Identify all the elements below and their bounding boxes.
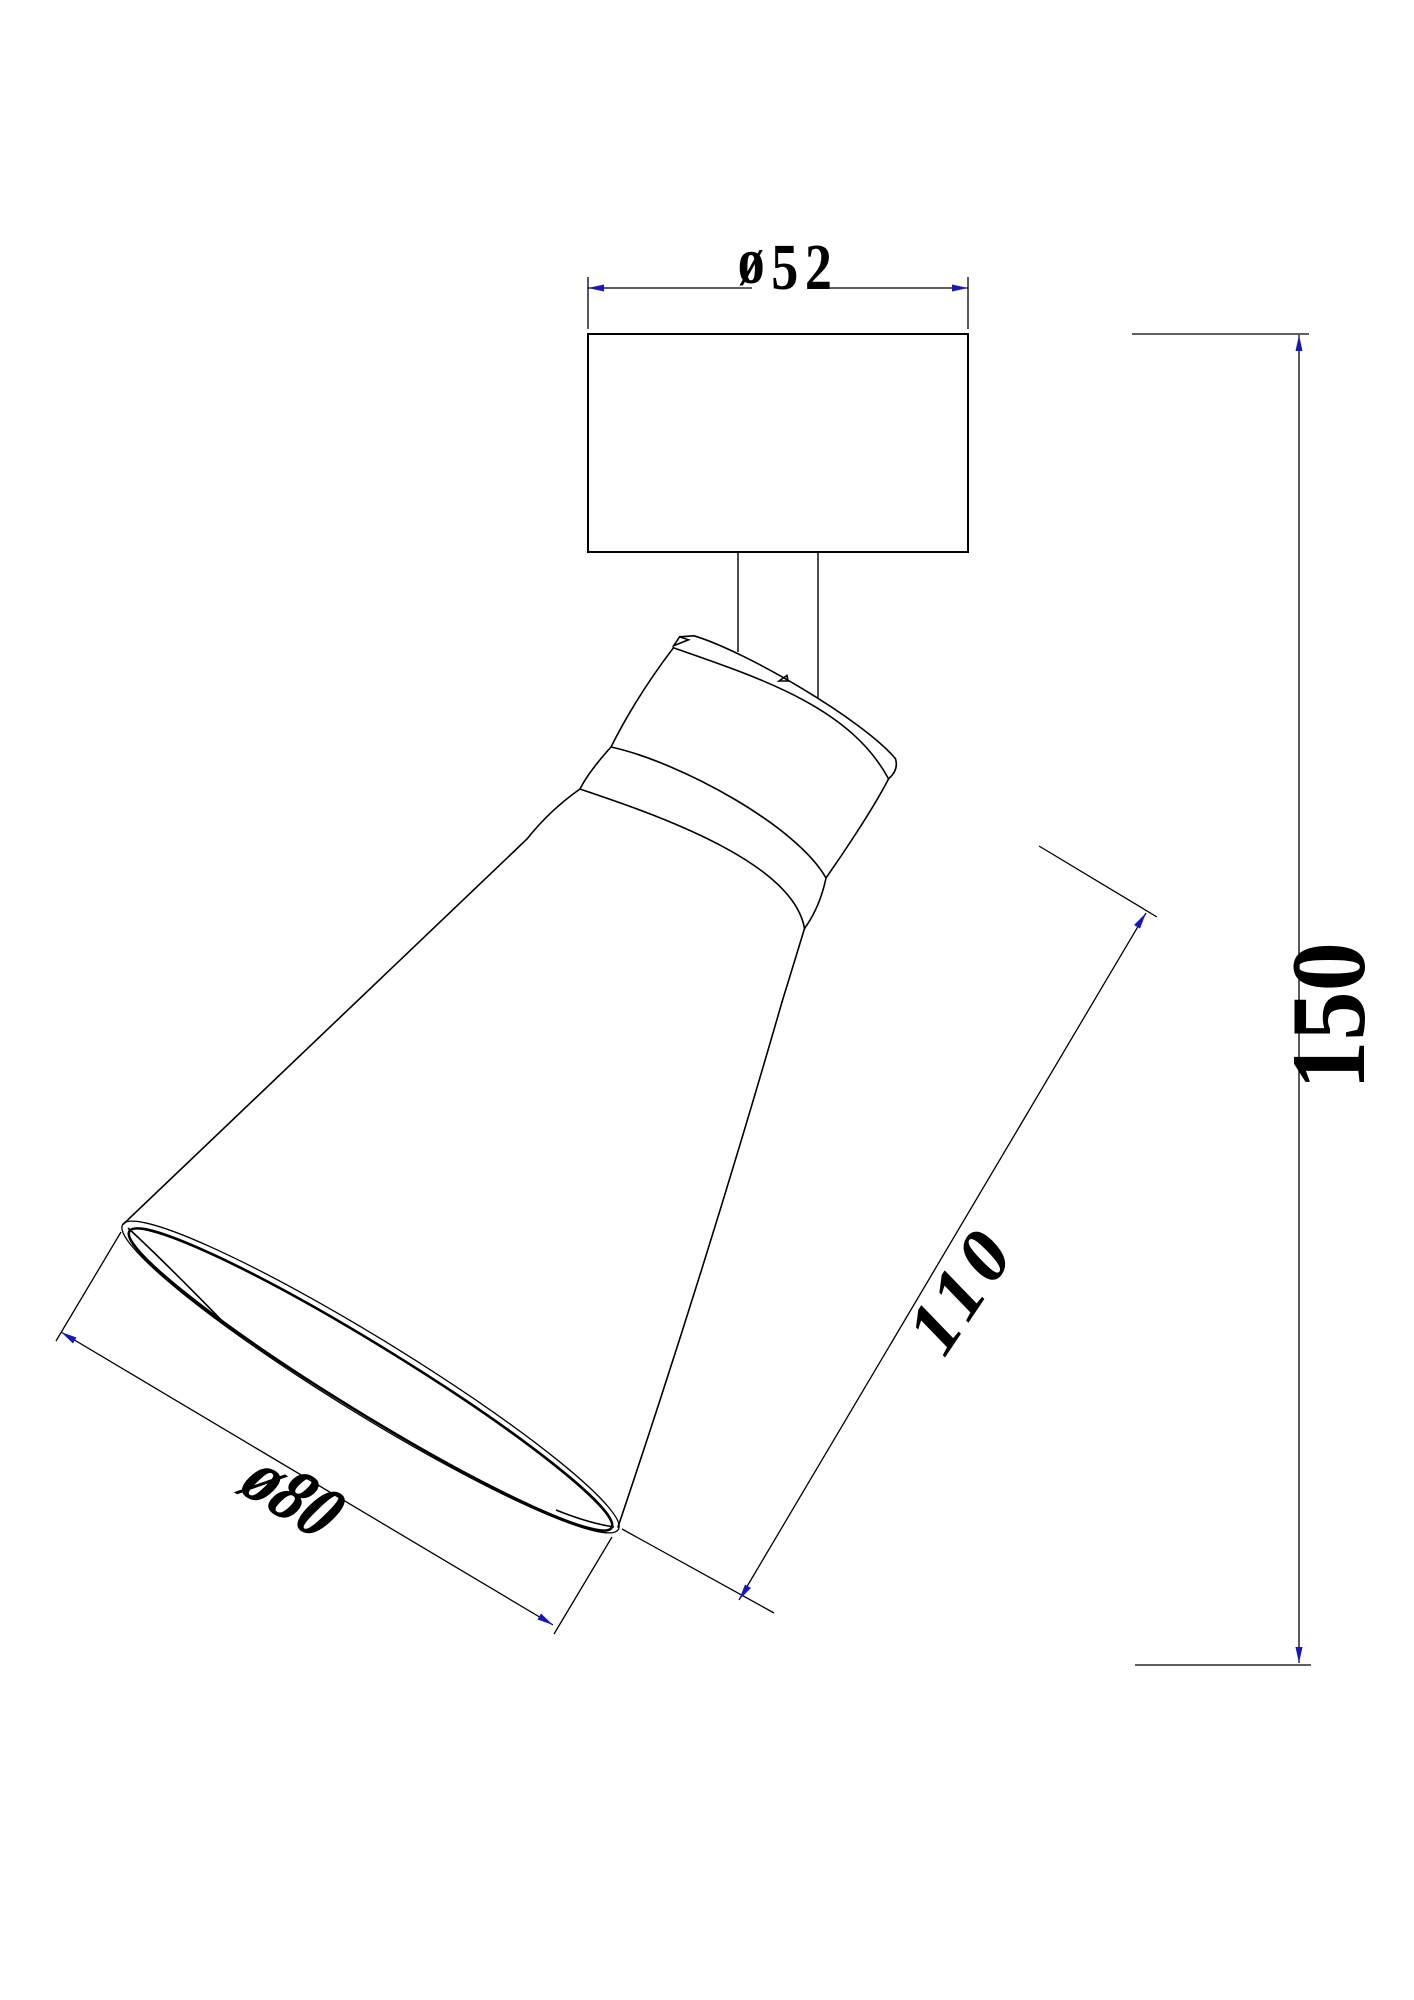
svg-text:150: 150 (1271, 942, 1388, 1090)
svg-text:ø52: ø52 (738, 225, 839, 304)
